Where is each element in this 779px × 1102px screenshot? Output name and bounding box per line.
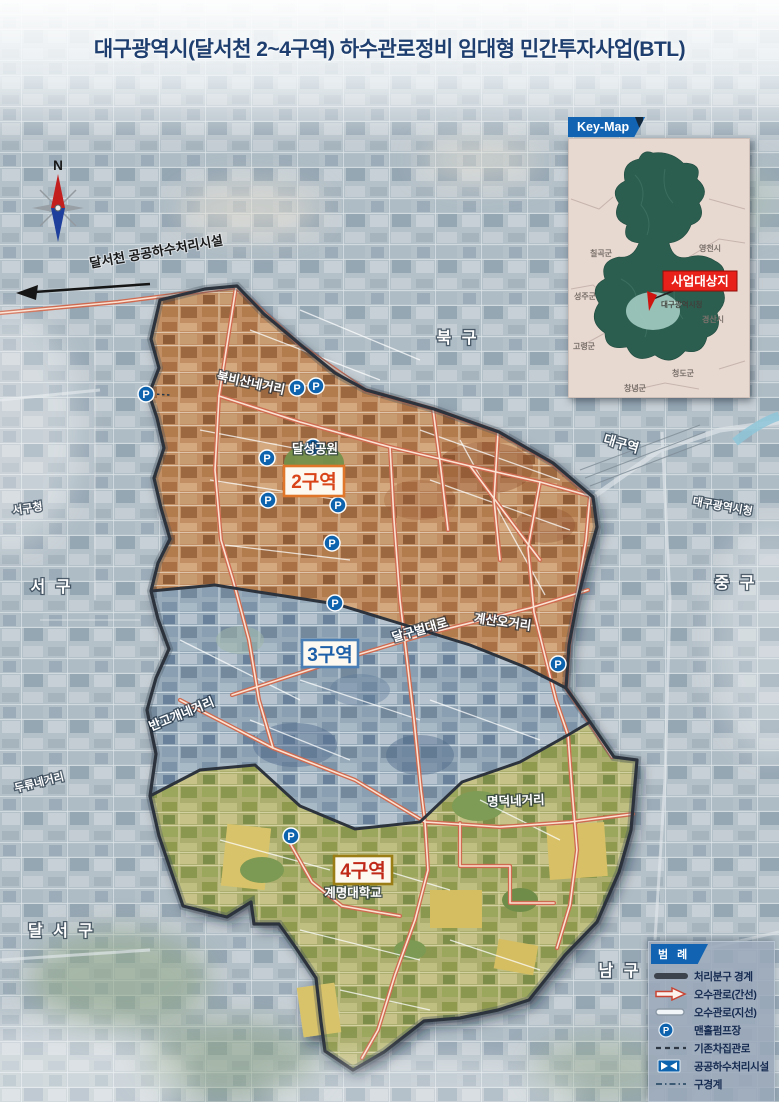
green-patch (502, 888, 538, 912)
legend-item-label: 기존차집관로 (694, 1041, 750, 1056)
target-site-badge: 사업대상지 (663, 271, 737, 291)
legend-item: 처리분구 경계 (649, 967, 774, 985)
zone-label-3: 3구역 (302, 640, 358, 667)
place-label-dalseong-park: 달성공원 (292, 442, 338, 456)
legend-item: 구경계 (649, 1075, 774, 1093)
legend-item-label: 오수관로(간선) (694, 987, 757, 1002)
district-label-junggu: 중 구 (715, 574, 758, 592)
legend-panel: 범 례 처리분구 경계 오수관로(간선) 오수관로(지선) P 맨홀펌프장 기존… (648, 941, 775, 1102)
cloud-haze-top (0, 0, 779, 145)
legend-swatch-branch-bar (654, 1004, 688, 1020)
legend-swatch-pump: P (654, 1022, 688, 1038)
svg-text:P: P (554, 659, 561, 671)
legend-item-label: 오수관로(지선) (694, 1005, 757, 1020)
pump-marker: P (308, 378, 324, 394)
page-title: 대구광역시(달서천 2~4구역) 하수관로정비 임대형 민간투자사업(BTL) (0, 33, 779, 63)
poster-stage: P P P P P P P P P P P N 달서천 공공하수처리시설 북비산… (0, 0, 779, 1102)
legend-item-label: 처리분구 경계 (694, 969, 753, 984)
legend-title-banner: 범 례 (651, 944, 708, 964)
keymap-region-label: 청도군 (672, 368, 695, 378)
pump-marker: P (324, 535, 340, 551)
pump-marker: P (289, 380, 305, 396)
zone-label-2: 2구역 (284, 466, 344, 496)
green-patch (240, 857, 284, 883)
keymap-region-label: 성주군 (574, 291, 597, 301)
svg-text:P: P (263, 453, 270, 465)
keymap-region-label: 고령군 (573, 341, 596, 351)
legend-item-label: 공공하수처리시설 (694, 1059, 769, 1074)
svg-text:P: P (663, 1026, 670, 1037)
svg-text:4구역: 4구역 (340, 860, 386, 882)
legend-item-label: 구경계 (694, 1077, 722, 1092)
place-label-keimyung-univ: 계명대학교 (324, 885, 382, 900)
district-label-dalseogu: 달 서 구 (28, 921, 96, 940)
keymap-map: 칠곡군 영천시 성주군 경산시 고령군 청도군 창녕군 사업대상지 대구광역시청 (569, 139, 747, 395)
keymap-title-banner: Key-Map (568, 117, 645, 137)
pump-marker: P (283, 828, 299, 844)
pump-marker: P (330, 497, 346, 513)
legend-item: P 맨홀펌프장 (649, 1021, 774, 1039)
district-label-bukgu: 북 구 (437, 329, 480, 347)
pump-marker: P (138, 386, 154, 402)
keymap-region-label: 경산시 (702, 314, 724, 324)
svg-text:P: P (293, 383, 300, 395)
legend-item: 오수관로(간선) (649, 985, 774, 1003)
legend-swatch-plant (654, 1058, 688, 1074)
svg-text:2구역: 2구역 (291, 471, 337, 493)
legend-swatch-dashed (654, 1040, 688, 1056)
pump-marker: P (260, 492, 276, 508)
highrise-patch (330, 674, 390, 706)
svg-text:사업대상지: 사업대상지 (671, 274, 729, 289)
legend-swatch-trunk-arrow (654, 986, 688, 1002)
legend-item-label: 맨홀펌프장 (694, 1023, 741, 1038)
pump-marker: P (550, 656, 566, 672)
svg-text:3구역: 3구역 (307, 644, 353, 666)
pump-marker: P (259, 450, 275, 466)
keymap-region-label: 창녕군 (624, 383, 647, 393)
legend-swatch-boundary (654, 968, 688, 984)
compass-north-label: N (53, 158, 63, 173)
zone-label-4: 4구역 (334, 856, 392, 884)
legend-swatch-dash-dot (654, 1076, 688, 1092)
svg-text:P: P (287, 831, 294, 843)
green-patch (216, 626, 264, 654)
legend-item: 오수관로(지선) (649, 1003, 774, 1021)
keymap-region-label: 칠곡군 (590, 248, 613, 258)
svg-text:P: P (264, 495, 271, 507)
keymap-cityhall-label: 대구광역시청 (661, 299, 702, 309)
legend-item: 공공하수처리시설 (649, 1057, 774, 1075)
svg-text:P: P (142, 389, 149, 401)
keymap-region-label: 영천시 (699, 243, 721, 253)
svg-text:P: P (334, 500, 341, 512)
legend-item: 기존차집관로 (649, 1039, 774, 1057)
district-label-namgu: 남 구 (599, 962, 642, 980)
svg-text:P: P (331, 598, 338, 610)
field-patch (430, 890, 482, 928)
keymap-panel: Key-Map 칠곡군 영천시 성주군 경산시 고령군 청도군 창녕군 사업대상… (568, 138, 750, 398)
svg-text:P: P (328, 538, 335, 550)
svg-text:P: P (312, 381, 319, 393)
district-label-seogu: 서 구 (31, 578, 74, 596)
pump-marker: P (327, 595, 343, 611)
road-label-myeongdeok: 명덕네거리 (487, 792, 545, 809)
